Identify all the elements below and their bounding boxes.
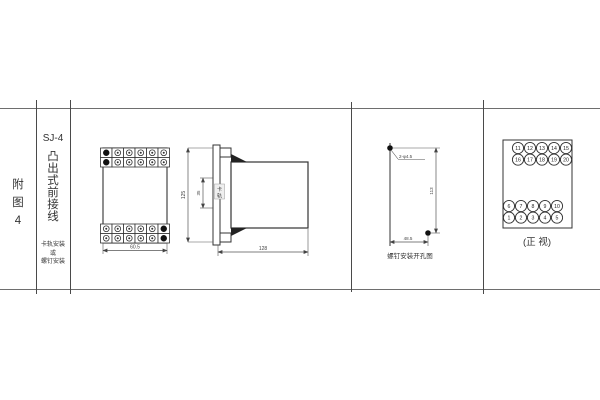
horizontal-dim-text: 48.5 <box>404 236 413 241</box>
type-char: 式 <box>36 175 70 187</box>
drill-caption: 螺钉安装开孔图 <box>387 251 433 260</box>
terminal-number: 14 <box>551 146 557 152</box>
terminal-number: 11 <box>515 146 520 152</box>
vertical-dim-text: 113 <box>429 187 434 195</box>
table-divider-2 <box>70 100 71 294</box>
terminal-number: 15 <box>563 146 569 152</box>
terminal-number: 12 <box>527 146 533 152</box>
terminal-number: 19 <box>551 157 557 163</box>
terminal-number: 1 <box>508 215 511 221</box>
wiring-type-label: 凸 出 式 前 接 线 <box>36 151 70 223</box>
terminal-strip-top <box>101 148 170 167</box>
terminal-number: 8 <box>532 204 535 210</box>
type-char: 线 <box>36 211 70 223</box>
drill-diagram: 2-φ4.5 113 48.5 螺钉安装开孔图 <box>368 136 463 266</box>
type-char: 凸 <box>36 151 70 163</box>
rail-label-char: 卡 <box>217 186 222 193</box>
terminal-number: 13 <box>539 146 545 152</box>
side-height-dim-text: 125 <box>181 191 187 200</box>
rail-dim-text: 35 <box>196 190 201 196</box>
figure-char: 附 <box>0 176 36 194</box>
table-bottom-rule <box>0 289 600 290</box>
front-view-drawing: 60.5 <box>95 142 177 262</box>
rail-label-box: 卡 轨 <box>215 184 225 200</box>
depth-dim-text: 128 <box>259 246 268 252</box>
terminal-number: 17 <box>527 157 533 163</box>
terminal-number: 18 <box>539 157 545 163</box>
terminal-number: 2 <box>520 215 523 221</box>
figure-char: 图 <box>0 194 36 212</box>
table-divider-4 <box>483 100 484 294</box>
model-label: SJ-4 <box>36 133 70 145</box>
type-char: 前 <box>36 187 70 199</box>
rail-dimension <box>200 178 213 208</box>
drill-hole-top <box>387 145 393 151</box>
mounting-note-line: 螺钉安装 <box>36 258 70 267</box>
terminal-number: 4 <box>544 215 547 221</box>
hole-label-text: 2-φ4.5 <box>399 154 413 159</box>
drawing-sheet: 附 图 4 SJ-4 凸 出 式 前 接 线 卡轨安装 或 螺钉安装 <box>0 0 600 400</box>
type-char: 出 <box>36 163 70 175</box>
relay-side-outline <box>213 145 308 245</box>
terminal-number: 6 <box>508 204 511 210</box>
mounting-note-line: 卡轨安装 <box>36 241 70 250</box>
type-char: 接 <box>36 199 70 211</box>
mounting-note-line: 或 <box>36 250 70 259</box>
table-top-rule <box>0 108 600 109</box>
terminal-strip-bottom <box>101 224 170 243</box>
figure-number-label: 附 图 4 <box>0 176 36 230</box>
front-width-dim-text: 60.5 <box>130 245 140 251</box>
terminal-number: 7 <box>520 204 523 210</box>
figure-char: 4 <box>0 212 36 230</box>
terminal-number: 16 <box>515 157 521 163</box>
terminal-caption: (正 视) <box>523 236 551 248</box>
terminal-number: 3 <box>532 215 535 221</box>
terminal-number: 20 <box>563 157 569 163</box>
table-divider-3 <box>351 102 352 292</box>
terminal-layout-drawing: 11 12 13 14 15 16 17 18 19 20 6 7 8 9 10… <box>493 132 588 257</box>
terminal-number: 10 <box>554 204 560 210</box>
side-view-drawing: 125 35 卡 轨 128 <box>180 135 315 263</box>
rail-label-char: 轨 <box>217 193 222 200</box>
terminal-number: 9 <box>544 204 547 210</box>
drill-hole-bottom <box>425 230 431 236</box>
mounting-note: 卡轨安装 或 螺钉安装 <box>36 241 70 267</box>
terminal-number: 5 <box>556 215 559 221</box>
